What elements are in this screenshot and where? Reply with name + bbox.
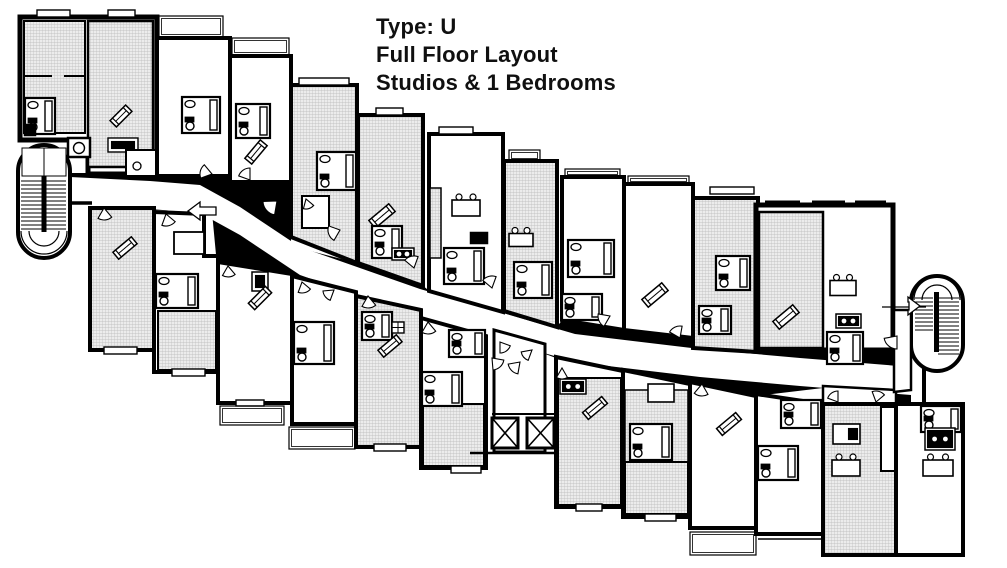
svg-text:Studios & 1 Bedrooms: Studios & 1 Bedrooms (376, 70, 616, 95)
svg-text:Type: U: Type: U (376, 14, 456, 39)
svg-text:Full Floor Layout: Full Floor Layout (376, 42, 558, 67)
